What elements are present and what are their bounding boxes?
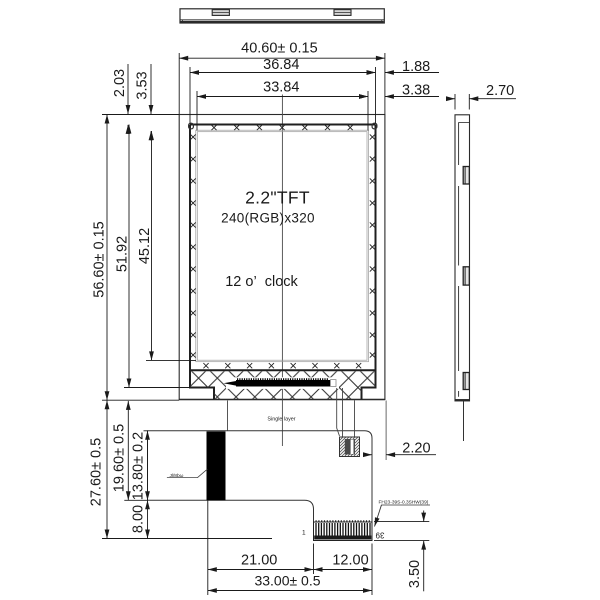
svg-text:12 o’ clock: 12 o’ clock xyxy=(225,274,298,290)
svg-text:Jl/8bω: Jl/8bω xyxy=(170,473,184,479)
svg-text:19.60± 0.5: 19.60± 0.5 xyxy=(111,424,127,492)
svg-text:2.20: 2.20 xyxy=(402,440,430,456)
svg-text:13.80± 0.2: 13.80± 0.2 xyxy=(130,432,146,500)
svg-text:2.70: 2.70 xyxy=(486,83,514,99)
svg-text:Single layer: Single layer xyxy=(267,417,295,423)
svg-text:1.88: 1.88 xyxy=(402,59,430,75)
svg-text:51.92: 51.92 xyxy=(114,236,130,272)
svg-text:36.84: 36.84 xyxy=(263,57,299,73)
svg-text:45.12: 45.12 xyxy=(137,228,153,264)
svg-text:2.03: 2.03 xyxy=(112,69,128,97)
svg-text:8.00: 8.00 xyxy=(130,505,146,533)
svg-text:3.50: 3.50 xyxy=(407,560,423,588)
svg-text:56.60± 0.15: 56.60± 0.15 xyxy=(92,221,108,298)
svg-text:33.84: 33.84 xyxy=(263,80,299,96)
svg-text:FH23-39S-0.3SHW(39): FH23-39S-0.3SHW(39) xyxy=(379,500,429,506)
svg-text:40.60± 0.15: 40.60± 0.15 xyxy=(241,40,318,56)
svg-text:39: 39 xyxy=(375,531,384,540)
svg-text:12.00: 12.00 xyxy=(332,552,368,568)
svg-text:1: 1 xyxy=(302,530,306,537)
svg-text:27.60± 0.5: 27.60± 0.5 xyxy=(89,438,105,506)
svg-text:240(RGB)x320: 240(RGB)x320 xyxy=(221,211,315,226)
svg-text:2.2"TFT: 2.2"TFT xyxy=(245,188,310,208)
svg-text:3.53: 3.53 xyxy=(135,71,151,99)
svg-text:3.38: 3.38 xyxy=(402,83,430,99)
svg-text:33.00± 0.5: 33.00± 0.5 xyxy=(254,572,320,588)
svg-text:21.00: 21.00 xyxy=(241,552,277,568)
